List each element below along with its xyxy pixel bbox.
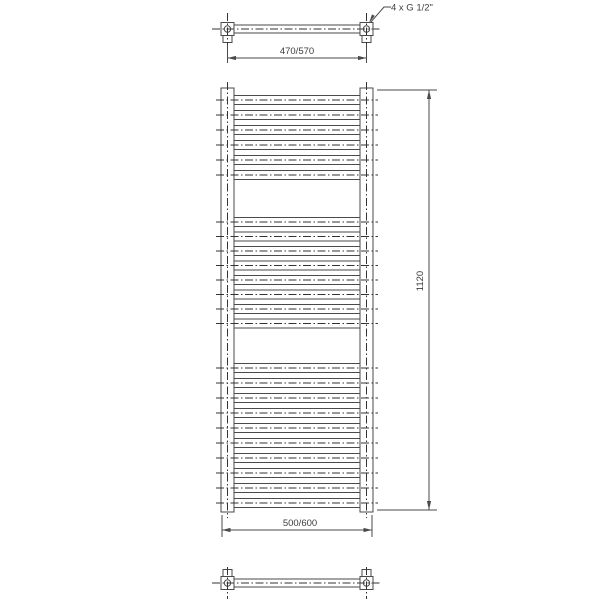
radiator-technical-drawing: 4 x G 1/2" 470/570 1120 500/60 — [0, 0, 600, 600]
dim-top-width: 470/570 — [228, 44, 367, 63]
top-left-connector — [221, 13, 234, 49]
arrowhead-left — [222, 528, 231, 532]
front-view-rungs — [216, 96, 378, 508]
connection-note-label: 4 x G 1/2" — [391, 3, 433, 14]
bottom-width-label: 500/600 — [283, 518, 317, 529]
arrowhead-right — [358, 56, 367, 60]
dim-bottom-width: 500/600 — [222, 515, 372, 537]
height-label: 1120 — [415, 271, 426, 291]
arrowhead-top — [427, 90, 431, 99]
arrowhead-right — [364, 528, 373, 532]
top-width-label: 470/570 — [280, 46, 314, 57]
bottom-view — [212, 567, 382, 599]
top-view: 4 x G 1/2" 470/570 — [212, 3, 433, 64]
dim-height: 1120 — [377, 90, 437, 510]
connection-annotation: 4 x G 1/2" — [369, 3, 433, 24]
drawing-svg: 4 x G 1/2" 470/570 1120 500/60 — [0, 0, 600, 600]
front-view — [216, 82, 378, 518]
leader-line — [371, 7, 392, 23]
arrowhead-left — [228, 56, 237, 60]
arrowhead-bottom — [427, 501, 431, 510]
